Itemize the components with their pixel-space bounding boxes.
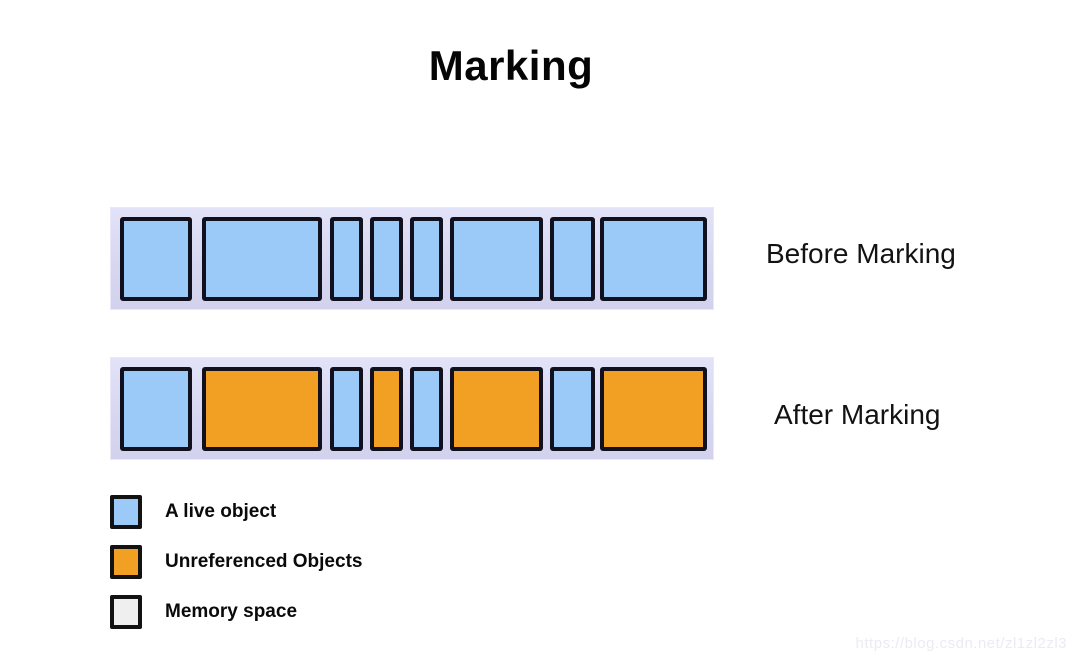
memory-box-unreferenced	[600, 367, 707, 451]
memory-box-live	[202, 217, 322, 301]
page-title: Marking	[0, 42, 1022, 90]
memory-box-live	[120, 217, 192, 301]
memory-box-live	[120, 367, 192, 451]
memory-bar-after	[110, 357, 714, 460]
after-marking-label: After Marking	[774, 399, 941, 431]
csdn-watermark: https://blog.csdn.net/zl1zl2zl3	[856, 635, 1067, 652]
memory-box-unreferenced	[202, 367, 322, 451]
legend-label-live-object: A live object	[165, 501, 276, 523]
memory-space-swatch	[110, 595, 142, 629]
before-marking-label: Before Marking	[766, 238, 956, 270]
memory-box-live	[410, 217, 443, 301]
memory-box-live	[330, 217, 363, 301]
memory-box-live	[550, 367, 595, 451]
legend-item-memory-space: Memory space	[110, 595, 362, 629]
live-object-swatch	[110, 495, 142, 529]
legend-label-unreferenced-objects: Unreferenced Objects	[165, 551, 362, 573]
legend-item-live-object: A live object	[110, 495, 362, 529]
memory-box-live	[330, 367, 363, 451]
memory-box-unreferenced	[450, 367, 543, 451]
slide: Marking Before Marking After Marking A l…	[0, 0, 1077, 660]
memory-box-live	[450, 217, 543, 301]
legend-label-memory-space: Memory space	[165, 601, 297, 623]
memory-box-live	[600, 217, 707, 301]
legend-item-unreferenced-objects: Unreferenced Objects	[110, 545, 362, 579]
memory-box-unreferenced	[370, 367, 403, 451]
unreferenced-objects-swatch	[110, 545, 142, 579]
memory-box-live	[410, 367, 443, 451]
memory-bar-before	[110, 207, 714, 310]
legend: A live object Unreferenced Objects Memor…	[110, 495, 362, 645]
memory-box-live	[550, 217, 595, 301]
memory-box-live	[370, 217, 403, 301]
